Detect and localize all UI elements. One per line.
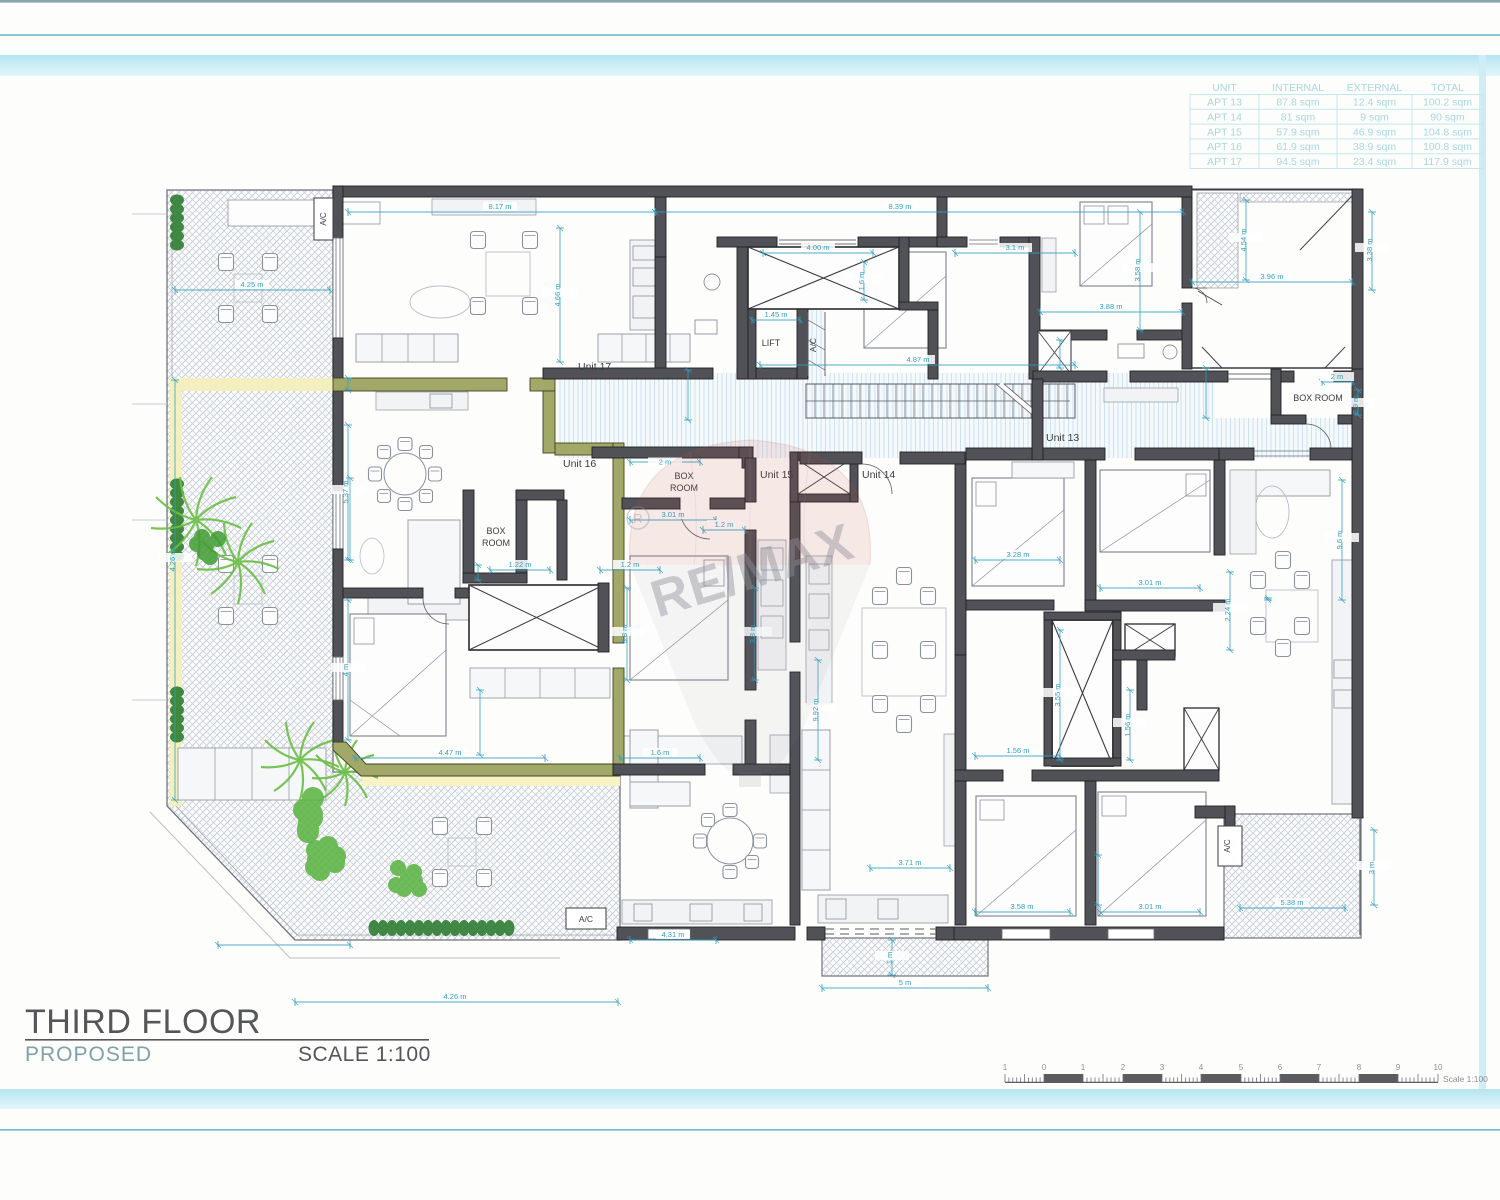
svg-text:87.8 sqm: 87.8 sqm bbox=[1276, 97, 1319, 109]
svg-text:Scale 1:100: Scale 1:100 bbox=[1443, 1074, 1488, 1084]
svg-text:APT 15: APT 15 bbox=[1207, 126, 1242, 138]
svg-text:Unit 14: Unit 14 bbox=[862, 469, 895, 481]
svg-text:TOTAL: TOTAL bbox=[1431, 82, 1464, 94]
svg-text:BOX: BOX bbox=[486, 526, 505, 536]
svg-text:3.01 m: 3.01 m bbox=[1139, 902, 1162, 911]
svg-text:4.47 m: 4.47 m bbox=[439, 748, 462, 757]
svg-text:12.4 sqm: 12.4 sqm bbox=[1353, 97, 1396, 109]
svg-text:APT 16: APT 16 bbox=[1207, 141, 1242, 153]
svg-text:4.26 m: 4.26 m bbox=[168, 549, 177, 572]
svg-text:4 m: 4 m bbox=[341, 664, 350, 677]
svg-text:LIFT: LIFT bbox=[762, 338, 781, 348]
svg-text:3.58 m: 3.58 m bbox=[1133, 259, 1142, 282]
svg-text:3.1 m: 3.1 m bbox=[1006, 243, 1025, 252]
svg-text:R: R bbox=[633, 511, 642, 526]
svg-text:5: 5 bbox=[1239, 1063, 1244, 1072]
svg-text:94.5 sqm: 94.5 sqm bbox=[1276, 156, 1319, 168]
svg-text:9 sqm: 9 sqm bbox=[1360, 112, 1389, 124]
svg-text:5 m: 5 m bbox=[899, 978, 912, 987]
svg-text:SCALE 1:100: SCALE 1:100 bbox=[298, 1043, 431, 1066]
svg-text:0.9 m: 0.9 m bbox=[1351, 396, 1360, 415]
svg-text:0: 0 bbox=[1042, 1063, 1047, 1072]
svg-text:8: 8 bbox=[1357, 1063, 1362, 1072]
svg-text:90 sqm: 90 sqm bbox=[1430, 112, 1465, 124]
svg-text:ROOM: ROOM bbox=[482, 538, 510, 548]
svg-text:3.96 m: 3.96 m bbox=[1261, 272, 1284, 281]
svg-text:4.31 m: 4.31 m bbox=[662, 930, 685, 939]
svg-text:4.66 m: 4.66 m bbox=[553, 284, 562, 307]
svg-text:3 m: 3 m bbox=[1367, 862, 1376, 875]
svg-text:EXTERNAL: EXTERNAL bbox=[1347, 82, 1403, 94]
svg-text:A/C: A/C bbox=[808, 338, 818, 352]
svg-text:Unit 13: Unit 13 bbox=[1046, 432, 1079, 444]
svg-text:3.88 m: 3.88 m bbox=[1100, 302, 1123, 311]
svg-text:1.6 m: 1.6 m bbox=[651, 748, 670, 757]
svg-text:3.38 m: 3.38 m bbox=[1365, 239, 1374, 262]
svg-text:A/C: A/C bbox=[1223, 839, 1232, 853]
svg-text:4.54 m: 4.54 m bbox=[1239, 229, 1248, 252]
svg-text:BOX ROOM: BOX ROOM bbox=[1293, 393, 1343, 403]
svg-text:2.24 m: 2.24 m bbox=[1223, 599, 1232, 622]
svg-text:3.01 m: 3.01 m bbox=[1139, 578, 1162, 587]
svg-text:6: 6 bbox=[1278, 1063, 1283, 1072]
svg-text:1.45 m: 1.45 m bbox=[765, 310, 788, 319]
svg-text:INTERNAL: INTERNAL bbox=[1272, 82, 1324, 94]
svg-text:7: 7 bbox=[1317, 1063, 1322, 1072]
svg-text:81 sqm: 81 sqm bbox=[1281, 112, 1316, 124]
svg-text:3.55 m: 3.55 m bbox=[1053, 684, 1062, 707]
svg-text:9.6 m: 9.6 m bbox=[1335, 531, 1344, 550]
svg-text:1.6 m: 1.6 m bbox=[857, 272, 866, 291]
svg-text:8.39 m: 8.39 m bbox=[889, 202, 912, 211]
svg-text:5.38 m: 5.38 m bbox=[1281, 898, 1304, 907]
svg-text:3: 3 bbox=[1160, 1063, 1165, 1072]
svg-text:4: 4 bbox=[1199, 1063, 1204, 1072]
svg-text:APT 14: APT 14 bbox=[1207, 112, 1242, 124]
svg-text:4.00 m: 4.00 m bbox=[807, 243, 830, 252]
svg-text:THIRD FLOOR: THIRD FLOOR bbox=[25, 1003, 261, 1041]
svg-text:104.8 sqm: 104.8 sqm bbox=[1423, 126, 1472, 138]
svg-text:38.9 sqm: 38.9 sqm bbox=[1353, 141, 1396, 153]
svg-text:1: 1 bbox=[1081, 1063, 1086, 1072]
svg-text:APT 13: APT 13 bbox=[1207, 97, 1242, 109]
svg-text:1.56 m: 1.56 m bbox=[1123, 714, 1132, 737]
svg-text:APT 17: APT 17 bbox=[1207, 156, 1242, 168]
svg-text:A/C: A/C bbox=[319, 212, 328, 226]
svg-text:1.22 m: 1.22 m bbox=[509, 560, 532, 569]
svg-text:Unit 17: Unit 17 bbox=[578, 361, 611, 373]
svg-text:3.58 m: 3.58 m bbox=[1011, 902, 1034, 911]
svg-text:2: 2 bbox=[1121, 1063, 1126, 1072]
svg-text:3.71 m: 3.71 m bbox=[899, 858, 922, 867]
svg-text:1.56 m: 1.56 m bbox=[1007, 746, 1030, 755]
svg-text:61.9 sqm: 61.9 sqm bbox=[1276, 141, 1319, 153]
svg-text:1: 1 bbox=[1003, 1063, 1008, 1072]
svg-text:2 m: 2 m bbox=[1331, 372, 1344, 381]
svg-text:9: 9 bbox=[1396, 1063, 1401, 1072]
svg-text:Unit 16: Unit 16 bbox=[563, 458, 596, 470]
svg-text:4.26 m: 4.26 m bbox=[444, 992, 467, 1001]
svg-text:4.87 m: 4.87 m bbox=[907, 355, 930, 364]
svg-text:1 m: 1 m bbox=[885, 952, 894, 965]
svg-text:5.37 m: 5.37 m bbox=[341, 481, 350, 504]
svg-text:100.2 sqm: 100.2 sqm bbox=[1423, 97, 1472, 109]
svg-text:PROPOSED: PROPOSED bbox=[25, 1043, 152, 1066]
svg-text:23.4 sqm: 23.4 sqm bbox=[1353, 156, 1396, 168]
svg-text:UNIT: UNIT bbox=[1212, 82, 1237, 94]
svg-text:3.28 m: 3.28 m bbox=[1007, 550, 1030, 559]
svg-text:8.17 m: 8.17 m bbox=[489, 202, 512, 211]
svg-text:3.8 m: 3.8 m bbox=[620, 625, 629, 644]
svg-text:117.9 sqm: 117.9 sqm bbox=[1423, 156, 1472, 168]
svg-text:100.8 sqm: 100.8 sqm bbox=[1423, 141, 1472, 153]
svg-text:4.25 m: 4.25 m bbox=[241, 280, 264, 289]
svg-text:10: 10 bbox=[1434, 1063, 1443, 1072]
svg-text:A/C: A/C bbox=[579, 914, 593, 924]
svg-text:46.9 sqm: 46.9 sqm bbox=[1353, 126, 1396, 138]
svg-text:57.9 sqm: 57.9 sqm bbox=[1276, 126, 1319, 138]
